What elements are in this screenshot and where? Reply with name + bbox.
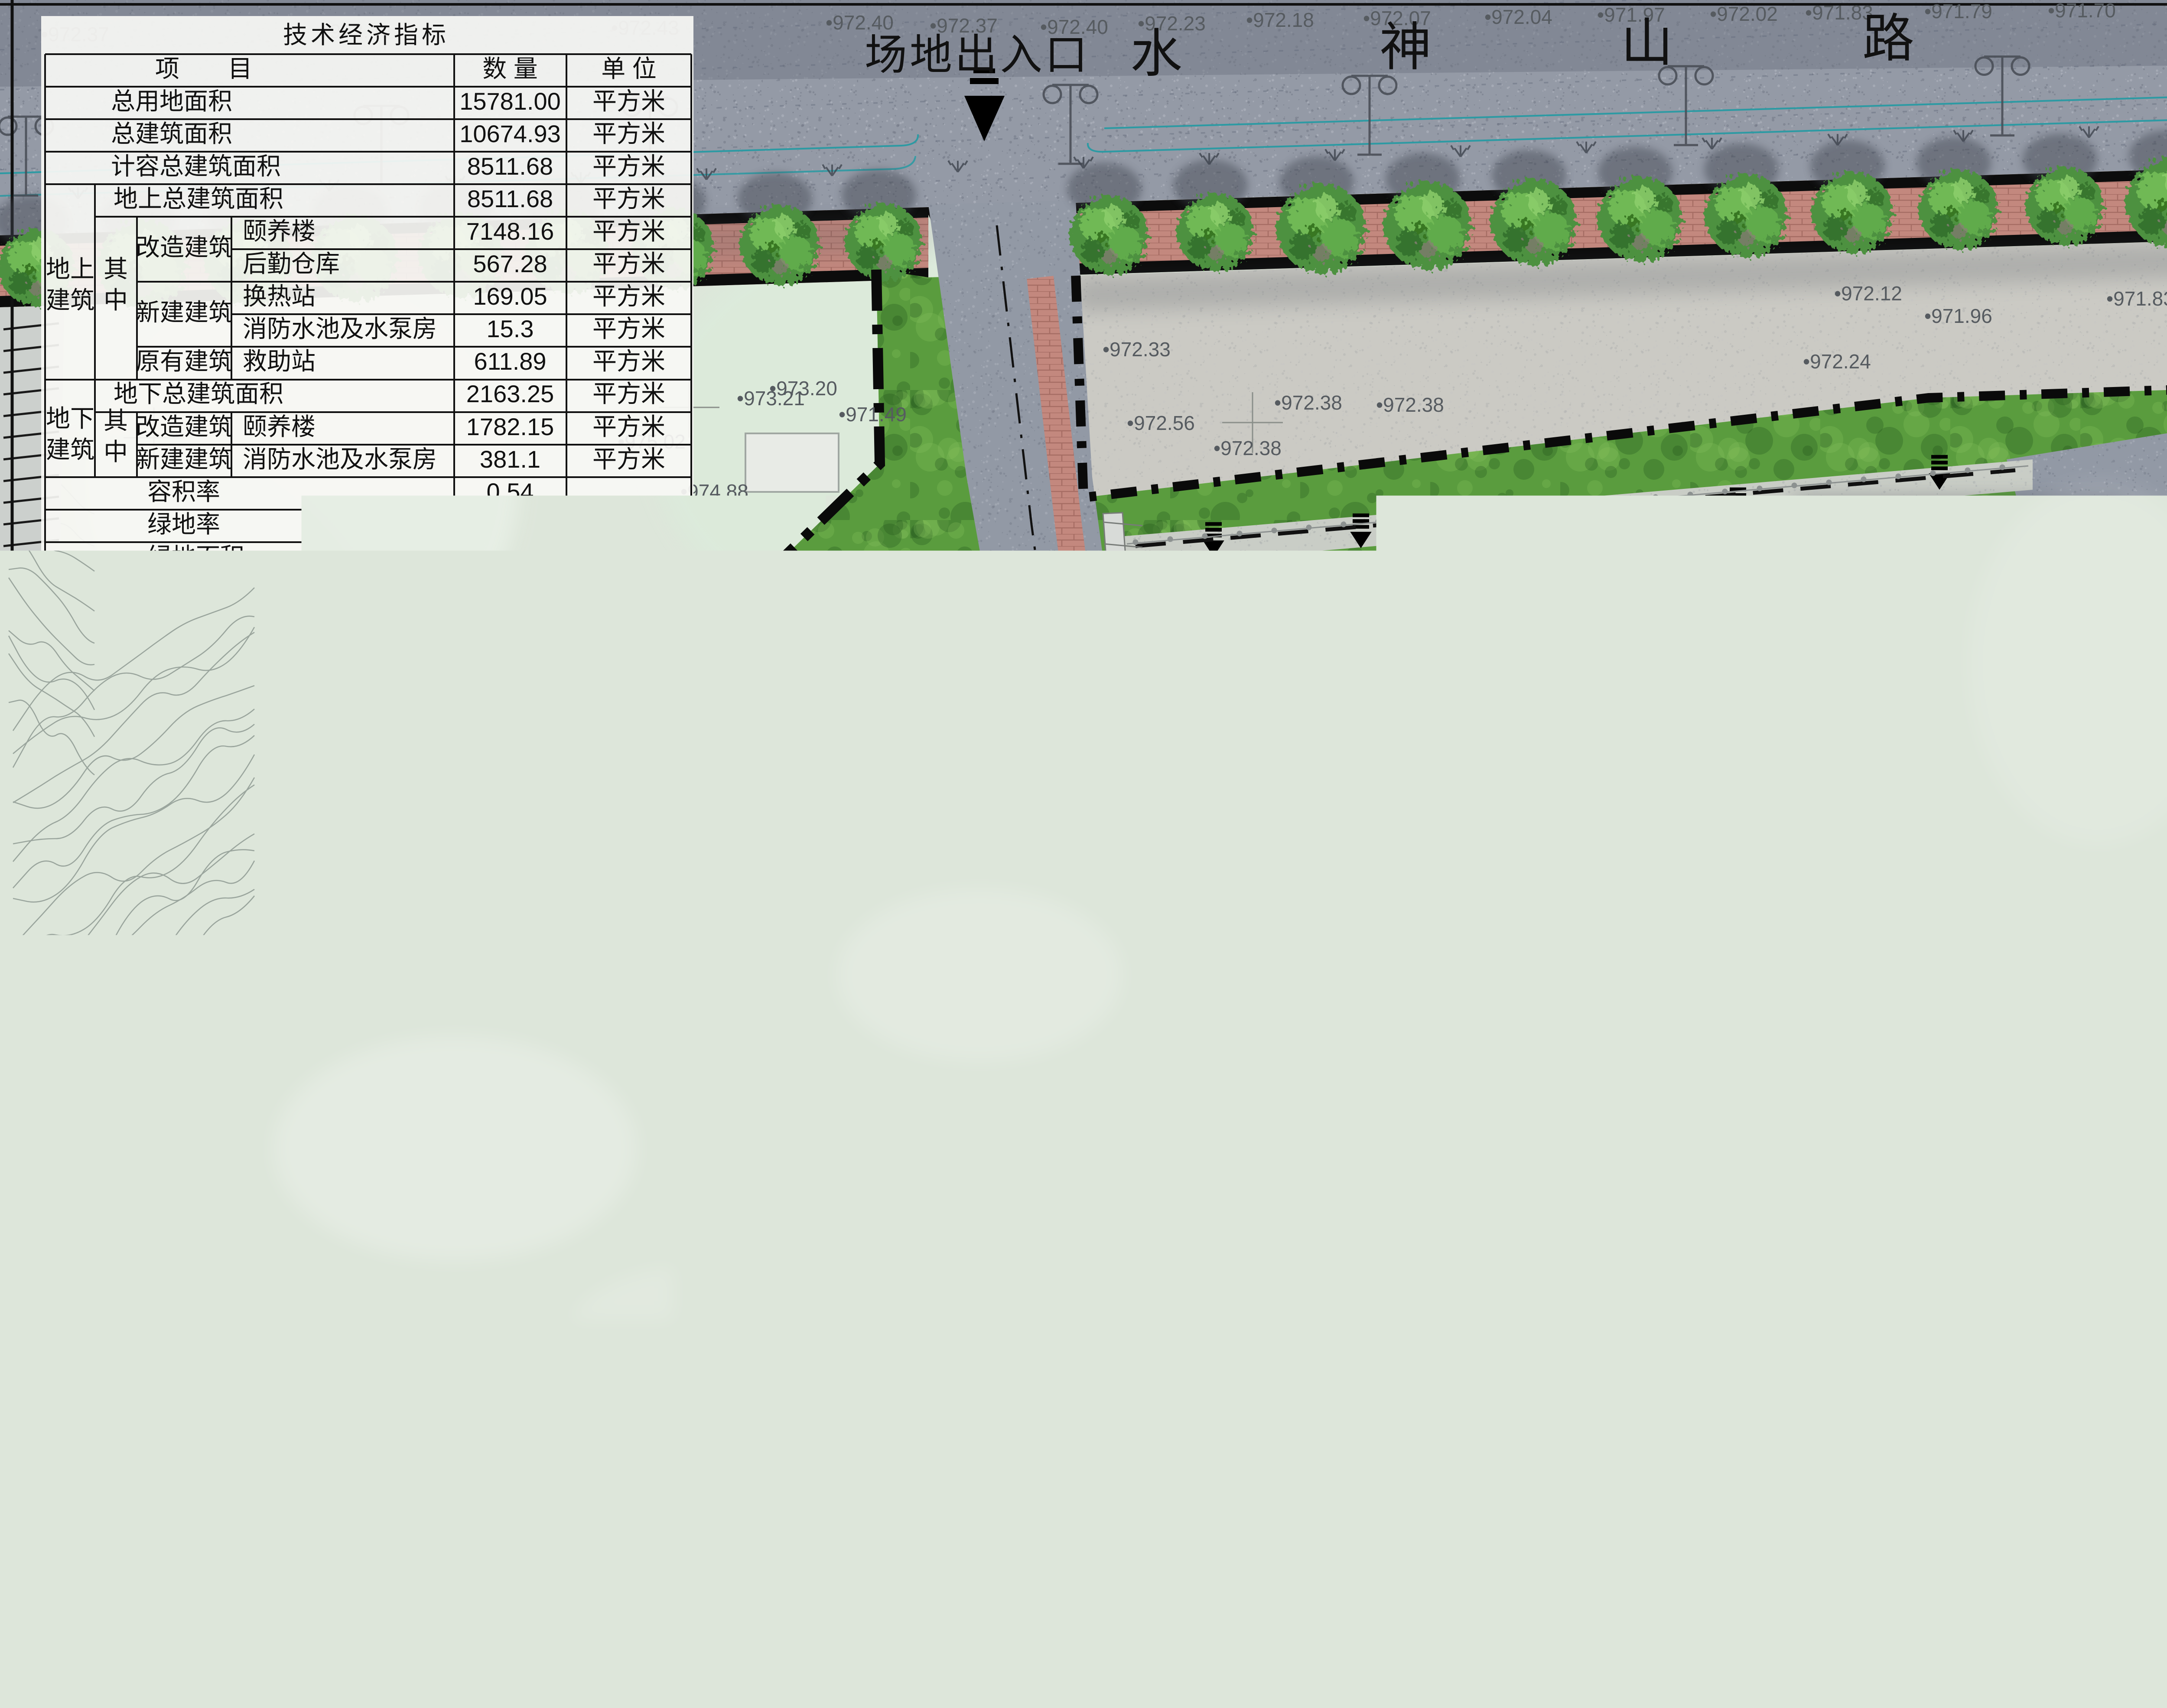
svg-text:•978.80: •978.80	[267, 1501, 335, 1523]
svg-text:•962.75: •962.75	[1939, 1575, 2008, 1597]
svg-text:平方米: 平方米	[592, 88, 665, 115]
svg-text:后勤仓库: 后勤仓库	[763, 708, 896, 749]
svg-text:•985.89: •985.89	[277, 817, 345, 840]
svg-text:•973.21: •973.21	[737, 387, 805, 410]
svg-text:•970.07: •970.07	[1716, 1438, 1784, 1461]
svg-text:5.00: 5.00	[999, 570, 1042, 595]
svg-text:新建建筑: 新建建筑	[136, 446, 233, 473]
svg-text:•971.83: •971.83	[2106, 287, 2167, 310]
svg-text:•972.38: •972.38	[1274, 391, 1342, 414]
svg-text:污水处理: 污水处理	[1906, 1045, 2003, 1072]
svg-text:绿地面积: 绿地面积	[147, 543, 244, 570]
svg-text:•971.37: •971.37	[1604, 1581, 1672, 1604]
svg-text:•983.58: •983.58	[1474, 1656, 1542, 1678]
svg-text:•972.32: •972.32	[182, 1340, 250, 1363]
svg-text:15781.00: 15781.00	[459, 88, 561, 115]
svg-text:救助站: 救助站	[243, 348, 316, 375]
svg-text:平方米: 平方米	[592, 348, 665, 375]
svg-text:•972.24: •972.24	[1803, 350, 1871, 373]
svg-text:•974.19: •974.19	[364, 1605, 432, 1627]
svg-text:变: 变	[1850, 1425, 1871, 1448]
svg-text:辆: 辆	[617, 641, 641, 668]
svg-text:•972.53: •972.53	[100, 1312, 168, 1335]
svg-text:•979.15: •979.15	[104, 1427, 172, 1450]
svg-text:消防回车场: 消防回车场	[2091, 972, 2167, 1003]
svg-text:颐养楼: 颐养楼	[1937, 645, 2046, 683]
svg-text:2F: 2F	[2102, 539, 2145, 580]
svg-text:•972.38: •972.38	[1214, 437, 1282, 459]
svg-text:20: 20	[497, 608, 524, 635]
svg-text:•972.88: •972.88	[52, 1143, 120, 1166]
svg-text:15.3: 15.3	[487, 315, 534, 342]
svg-text:非机动车停车位: 非机动车停车位	[147, 641, 317, 668]
svg-text:5F: 5F	[1721, 636, 1764, 678]
svg-text:建筑密度: 建筑密度	[147, 576, 244, 603]
svg-text:箱: 箱	[1913, 1394, 1934, 1417]
svg-text:新建建筑: 新建建筑	[136, 299, 233, 326]
svg-text:1F: 1F	[583, 1126, 620, 1162]
svg-text:中: 中	[104, 438, 128, 465]
svg-text:地上总建筑面积: 地上总建筑面积	[114, 185, 283, 212]
svg-text:神: 神	[1380, 18, 1432, 76]
svg-text:绿地率: 绿地率	[147, 511, 220, 538]
svg-text:•967.45: •967.45	[1723, 1519, 1791, 1542]
svg-text:箱: 箱	[1850, 1396, 1871, 1418]
svg-text:平方米: 平方米	[592, 380, 665, 407]
svg-text:18.72: 18.72	[480, 576, 540, 603]
svg-text:换热站: 换热站	[243, 283, 316, 310]
svg-text:•972.12: •972.12	[1834, 282, 1902, 305]
svg-text:消防水池: 消防水池	[1597, 1041, 1725, 1077]
svg-text:平方米: 平方米	[592, 120, 665, 147]
svg-text:停车位(14): 停车位(14)	[1470, 844, 1581, 870]
svg-text:颐养楼: 颐养楼	[243, 218, 316, 245]
svg-text:技术经济指标: 技术经济指标	[283, 21, 449, 49]
svg-text:机动车停车位: 机动车停车位	[147, 608, 293, 635]
svg-text:其: 其	[104, 255, 128, 283]
svg-text:•968.27: •968.27	[1773, 1643, 1841, 1665]
svg-text:•985.55: •985.55	[306, 1104, 374, 1127]
svg-text:其: 其	[104, 407, 128, 434]
svg-text:场地出入口: 场地出入口	[865, 31, 1090, 78]
svg-text:611.89: 611.89	[474, 348, 546, 375]
svg-text:平方米: 平方米	[592, 413, 665, 440]
svg-text:消防水池水泵房楼梯间: 消防水池水泵房楼梯间	[2039, 1356, 2167, 1383]
svg-text:•972.58: •972.58	[98, 1260, 166, 1283]
svg-text:•971.79: •971.79	[1924, 0, 1992, 23]
svg-text:充电桩: 充电桩	[1314, 911, 1382, 936]
svg-text:救助站: 救助站	[407, 1095, 501, 1129]
svg-text:•982.69: •982.69	[1346, 1495, 1414, 1518]
svg-text:•972.56: •972.56	[1127, 412, 1195, 434]
svg-text:（改造建筑）: （改造建筑）	[1430, 735, 1617, 770]
svg-text:救护车位(2): 救护车位(2)	[2047, 835, 2138, 854]
svg-text:•972.18: •972.18	[1246, 9, 1314, 31]
svg-text:中: 中	[104, 286, 128, 314]
svg-text:改造建筑: 改造建筑	[136, 234, 233, 261]
svg-text:5791: 5791	[483, 543, 537, 570]
svg-text:•971.96: •971.96	[1924, 305, 1992, 327]
svg-text:计容总建筑面积: 计容总建筑面积	[111, 153, 281, 180]
svg-text:项 目: 项 目	[155, 55, 252, 82]
svg-text:容积率: 容积率	[147, 478, 220, 505]
svg-text:•972.04: •972.04	[1484, 6, 1552, 28]
svg-text:单 位: 单 位	[601, 55, 657, 82]
svg-text:总用地面积: 总用地面积	[111, 88, 232, 115]
svg-text:•972.00: •972.00	[1562, 1634, 1630, 1656]
svg-text:169.05: 169.05	[473, 283, 547, 310]
svg-text:停车位(4): 停车位(4)	[1928, 825, 2023, 850]
svg-text:•983.10: •983.10	[1164, 1593, 1232, 1616]
svg-text:%: %	[618, 576, 640, 603]
svg-text:•966.26: •966.26	[2056, 1222, 2125, 1245]
svg-text:•971.49: •971.49	[839, 403, 907, 426]
svg-text:•985.66: •985.66	[407, 816, 475, 839]
svg-text:1F: 1F	[230, 1082, 266, 1116]
svg-text:平方米: 平方米	[592, 446, 665, 473]
svg-text:•972.89: •972.89	[390, 1434, 458, 1456]
svg-text:总平面布置图: 总平面布置图	[2023, 1589, 2167, 1646]
svg-text:•985.38: •985.38	[468, 684, 536, 706]
svg-text:4.00: 4.00	[1535, 1318, 1559, 1360]
svg-text:•970.17: •970.17	[1560, 515, 1628, 537]
svg-text:8511.68: 8511.68	[467, 185, 553, 212]
svg-text:7148.16: 7148.16	[466, 218, 554, 245]
svg-text:消防水池及水泵房: 消防水池及水泵房	[243, 446, 437, 473]
svg-text:•975.36: •975.36	[26, 1364, 94, 1387]
svg-text:%: %	[618, 511, 640, 538]
svg-text:平方米: 平方米	[592, 283, 665, 310]
svg-text:平方米: 平方米	[592, 153, 665, 180]
svg-text:消防水池及水泵房: 消防水池及水泵房	[243, 315, 437, 342]
svg-text:辆: 辆	[617, 608, 641, 635]
svg-text:亭子: 亭子	[1364, 1244, 1418, 1274]
svg-text:颐养楼: 颐养楼	[1469, 673, 1578, 712]
svg-text:改造建筑: 改造建筑	[136, 413, 233, 440]
svg-text:•973.34: •973.34	[568, 1563, 636, 1585]
svg-text:•971.70: •971.70	[2048, 0, 2116, 22]
svg-text:平方米: 平方米	[592, 218, 665, 245]
svg-text:•962.47: •962.47	[2111, 1430, 2167, 1453]
svg-text:地下总建筑面积: 地下总建筑面积	[114, 380, 283, 407]
svg-text:•985.57: •985.57	[182, 719, 250, 741]
svg-text:•972.02: •972.02	[1710, 3, 1778, 25]
svg-text:1782.15: 1782.15	[466, 413, 554, 440]
svg-text:变: 变	[1913, 1423, 1934, 1446]
svg-text:后勤仓库: 后勤仓库	[243, 250, 340, 277]
svg-text:•962.30: •962.30	[2132, 1499, 2167, 1521]
svg-text:平方米: 平方米	[592, 315, 665, 342]
svg-text:平方米: 平方米	[592, 185, 665, 212]
svg-text:•972.59: •972.59	[100, 1221, 168, 1244]
svg-text:•972.71: •972.71	[236, 1386, 304, 1409]
svg-text:10674.93: 10674.93	[459, 120, 561, 147]
svg-text:活动场地2: 活动场地2	[1591, 978, 1725, 1011]
svg-text:•967.88: •967.88	[1682, 1586, 1750, 1609]
svg-text:2F: 2F	[533, 905, 572, 943]
svg-text:•979.04: •979.04	[26, 1499, 94, 1521]
svg-text:•972.33: •972.33	[1103, 338, 1171, 361]
svg-text:0.54: 0.54	[487, 478, 534, 505]
svg-text:水: 水	[1130, 25, 1182, 83]
svg-text:化粪池: 化粪池	[1920, 999, 2000, 1029]
svg-text:•972.97: •972.97	[403, 1505, 471, 1528]
svg-text:原有建筑: 原有建筑	[136, 348, 233, 375]
svg-text:活动场地4: 活动场地4	[811, 1234, 961, 1271]
svg-text:8511.68: 8511.68	[467, 153, 553, 180]
svg-text:12.00: 12.00	[2141, 843, 2167, 868]
svg-text:567.28: 567.28	[473, 250, 547, 277]
svg-text:活动场地3: 活动场地3	[1233, 1149, 1375, 1184]
svg-text:路: 路	[1862, 10, 1914, 68]
svg-text:•979.07: •979.07	[52, 1453, 120, 1476]
svg-text:1F: 1F	[957, 643, 997, 681]
svg-text:园路: 园路	[1266, 1074, 1321, 1105]
svg-text:•973.58: •973.58	[711, 526, 779, 548]
svg-text:建筑: 建筑	[46, 436, 94, 463]
svg-text:15: 15	[497, 641, 524, 668]
svg-text:•983.37: •983.37	[1144, 1648, 1212, 1671]
svg-text:建筑: 建筑	[46, 286, 94, 314]
svg-text:•985.89: •985.89	[230, 781, 298, 804]
svg-text:•979.56: •979.56	[104, 1549, 172, 1571]
svg-text:381.1: 381.1	[480, 446, 540, 473]
svg-text:36.7: 36.7	[487, 511, 534, 538]
svg-text:2163.25: 2163.25	[466, 380, 554, 407]
svg-text:•972.38: •972.38	[1376, 394, 1444, 416]
svg-text:数 量: 数 量	[482, 55, 538, 82]
svg-text:•972.37: •972.37	[544, 1512, 612, 1534]
svg-text:平方米: 平方米	[592, 250, 665, 277]
svg-text:及水泵房: 及水泵房	[1597, 1089, 1725, 1125]
svg-text:•970.41: •970.41	[2152, 1409, 2167, 1431]
svg-text:地下: 地下	[46, 405, 94, 432]
svg-text:•982.82: •982.82	[1426, 1595, 1494, 1617]
svg-text:•962.56: •962.56	[1754, 1500, 1822, 1522]
svg-text:颐养楼: 颐养楼	[243, 413, 316, 440]
svg-text:活动场地1: 活动场地1	[1898, 1081, 2020, 1111]
svg-text:换热站: 换热站	[363, 1341, 469, 1385]
svg-text:1F: 1F	[414, 1285, 451, 1320]
svg-text:（改造建筑）: （改造建筑）	[1898, 703, 2085, 737]
svg-text:平方米: 平方米	[592, 543, 665, 570]
svg-text:总建筑面积: 总建筑面积	[111, 120, 232, 147]
svg-text:山: 山	[1621, 14, 1673, 72]
svg-text:地上: 地上	[46, 255, 94, 283]
